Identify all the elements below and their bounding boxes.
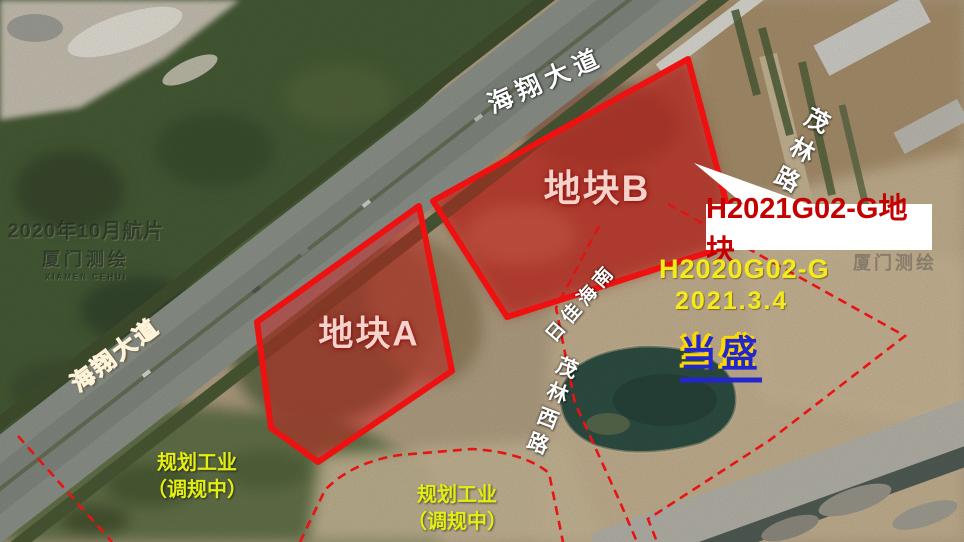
planning-label-2: 规划工业 （调规中） — [407, 482, 507, 536]
watermark-left: 2020年10月航片 厦门测绘 XIAMEN CEHUI — [8, 215, 165, 282]
planning-1-line1: 规划工业 — [147, 450, 247, 477]
satellite-annotation-map: 2020年10月航片 厦门测绘 XIAMEN CEHUI 厦门测绘 海翔大道 海… — [0, 0, 964, 542]
note-code: H2020G02-G — [659, 253, 830, 285]
planning-1-line2: （调规中） — [147, 477, 247, 504]
watermark-line3: XIAMEN CEHUI — [8, 273, 165, 282]
parcel-a-label: 地块A — [318, 306, 419, 357]
note-date: 2021.3.4 — [659, 285, 830, 317]
watermark-line2: 厦门测绘 — [8, 246, 165, 272]
planning-2-line1: 规划工业 — [407, 482, 507, 509]
planning-label-1: 规划工业 （调规中） — [147, 450, 247, 504]
parcel-b-label: 地块B — [544, 158, 651, 212]
watermark-line1: 2020年10月航片 — [8, 215, 165, 244]
planning-2-line2: （调规中） — [407, 509, 507, 536]
parcel-note: H2020G02-G 2021.3.4 — [659, 253, 830, 317]
callout-box: H2021G02-G地块 — [706, 204, 932, 250]
brand-label: 当盛 — [680, 324, 762, 383]
